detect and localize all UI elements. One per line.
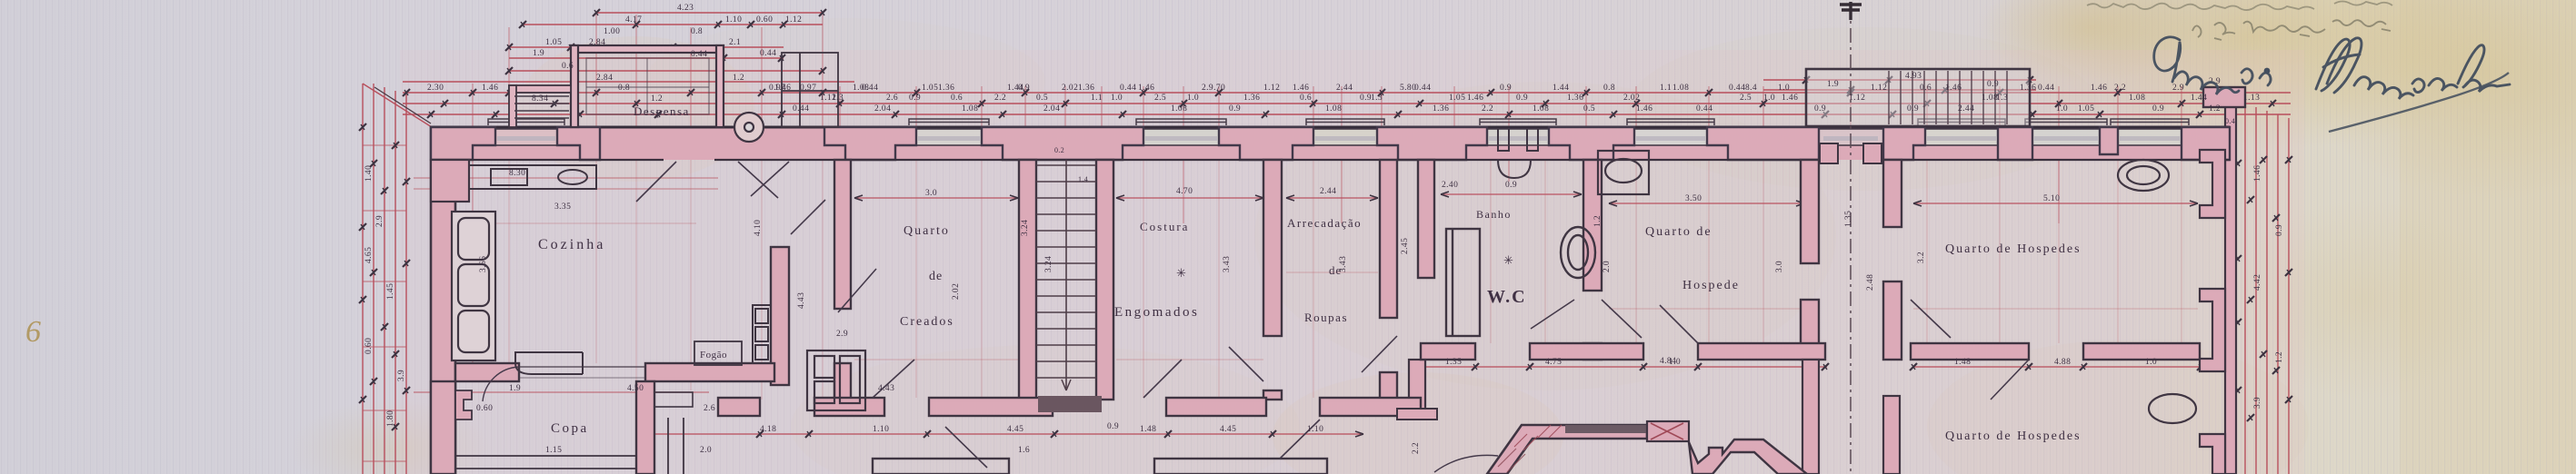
svg-text:1.0: 1.0 bbox=[1778, 84, 1790, 93]
svg-text:1.36: 1.36 bbox=[1078, 84, 1094, 93]
svg-text:4.45: 4.45 bbox=[1007, 425, 1023, 434]
svg-text:4.23: 4.23 bbox=[677, 4, 694, 13]
svg-text:Quarto de: Quarto de bbox=[1645, 225, 1712, 239]
svg-text:1.10: 1.10 bbox=[725, 15, 742, 25]
svg-text:1.08: 1.08 bbox=[962, 104, 978, 114]
svg-text:Copa: Copa bbox=[551, 421, 589, 436]
svg-text:0.5: 0.5 bbox=[1036, 94, 1048, 103]
svg-text:0.6: 0.6 bbox=[951, 94, 963, 103]
svg-text:2.5: 2.5 bbox=[1740, 94, 1752, 103]
svg-text:Despensa: Despensa bbox=[634, 104, 690, 118]
svg-text:1.36: 1.36 bbox=[1433, 104, 1449, 114]
svg-text:0.9: 0.9 bbox=[2275, 224, 2284, 236]
svg-text:1.9: 1.9 bbox=[533, 49, 544, 58]
svg-text:1.2: 1.2 bbox=[1593, 215, 1603, 227]
svg-text:1.9: 1.9 bbox=[509, 384, 521, 393]
svg-text:4.84: 4.84 bbox=[1660, 357, 1676, 366]
svg-text:1.40: 1.40 bbox=[364, 165, 374, 182]
svg-text:0.44: 0.44 bbox=[1120, 84, 1136, 93]
svg-text:3.43: 3.43 bbox=[1223, 256, 1232, 272]
svg-text:2.84: 2.84 bbox=[589, 38, 605, 47]
svg-text:1.08: 1.08 bbox=[1533, 104, 1549, 114]
svg-text:3.50: 3.50 bbox=[1685, 194, 1702, 203]
svg-text:8.4: 8.4 bbox=[1745, 84, 1757, 93]
svg-text:1.08: 1.08 bbox=[1672, 84, 1689, 93]
svg-text:2.6: 2.6 bbox=[704, 404, 715, 413]
svg-text:Costura: Costura bbox=[1140, 220, 1189, 233]
svg-text:2.2: 2.2 bbox=[994, 94, 1006, 103]
svg-text:0.9: 0.9 bbox=[1107, 422, 1119, 431]
svg-text:1.0: 1.0 bbox=[1763, 94, 1775, 103]
svg-text:1.1: 1.1 bbox=[1091, 94, 1103, 103]
svg-text:4.75: 4.75 bbox=[1545, 358, 1562, 367]
svg-text:0.44: 0.44 bbox=[691, 50, 707, 59]
svg-text:Quarto: Quarto bbox=[904, 224, 950, 238]
svg-text:1.3: 1.3 bbox=[1996, 94, 2008, 103]
svg-text:2.02: 2.02 bbox=[1623, 94, 1640, 103]
svg-text:✳: ✳ bbox=[1503, 253, 1513, 267]
svg-text:1.00: 1.00 bbox=[604, 27, 620, 36]
svg-text:0.44: 0.44 bbox=[793, 104, 809, 114]
svg-text:4.50: 4.50 bbox=[627, 384, 644, 393]
svg-text:0.97: 0.97 bbox=[800, 84, 816, 93]
svg-text:1.2: 1.2 bbox=[651, 94, 663, 104]
svg-text:3.43: 3.43 bbox=[1339, 256, 1348, 272]
svg-text:1.12: 1.12 bbox=[1871, 84, 1887, 93]
svg-text:0.5: 0.5 bbox=[1583, 104, 1595, 114]
svg-text:Engomados: Engomados bbox=[1114, 305, 1199, 320]
svg-text:0.60: 0.60 bbox=[756, 15, 773, 25]
svg-text:0.9: 0.9 bbox=[1814, 104, 1826, 114]
svg-text:Creados: Creados bbox=[900, 315, 954, 329]
svg-text:1.10: 1.10 bbox=[873, 425, 889, 434]
svg-text:1.46: 1.46 bbox=[1636, 104, 1652, 114]
svg-text:1.45: 1.45 bbox=[386, 283, 395, 300]
svg-text:de: de bbox=[929, 270, 943, 283]
svg-text:1.3: 1.3 bbox=[832, 94, 844, 103]
svg-text:1.48: 1.48 bbox=[1954, 358, 1971, 367]
svg-text:3.35: 3.35 bbox=[554, 202, 571, 212]
svg-text:Quarto de Hospedes: Quarto de Hospedes bbox=[1945, 242, 2082, 256]
svg-text:4.42: 4.42 bbox=[2253, 274, 2262, 291]
svg-text:1.2: 1.2 bbox=[2275, 351, 2284, 363]
svg-text:0.44: 0.44 bbox=[760, 49, 776, 58]
svg-text:Quarto de Hospedes: Quarto de Hospedes bbox=[1945, 430, 2082, 443]
svg-text:4.18: 4.18 bbox=[760, 425, 776, 434]
svg-text:0.9: 0.9 bbox=[2152, 104, 2164, 114]
svg-text:0.2: 0.2 bbox=[1054, 146, 1064, 154]
svg-text:1.05: 1.05 bbox=[2078, 104, 2094, 114]
svg-text:1.12: 1.12 bbox=[1263, 84, 1280, 93]
svg-text:3.2: 3.2 bbox=[1917, 252, 1926, 263]
svg-text:0.6: 0.6 bbox=[562, 62, 574, 71]
svg-text:0.60: 0.60 bbox=[476, 404, 493, 413]
svg-text:1.36: 1.36 bbox=[1243, 94, 1260, 103]
svg-text:Fogão: Fogão bbox=[700, 350, 727, 360]
svg-text:1.05: 1.05 bbox=[922, 84, 938, 93]
svg-text:0.9: 0.9 bbox=[1500, 84, 1512, 93]
svg-text:0.97: 0.97 bbox=[769, 84, 785, 93]
svg-text:0.9: 0.9 bbox=[1907, 104, 1919, 114]
svg-text:1.35: 1.35 bbox=[1445, 358, 1462, 367]
svg-text:0.9: 0.9 bbox=[909, 94, 921, 103]
svg-text:4.88: 4.88 bbox=[2054, 358, 2071, 367]
svg-text:3.0: 3.0 bbox=[925, 189, 937, 198]
svg-text:Hospede: Hospede bbox=[1682, 279, 1740, 292]
svg-text:Arrecadação: Arrecadação bbox=[1287, 216, 1362, 230]
svg-text:2.44: 2.44 bbox=[1958, 104, 1974, 114]
svg-text:1.10: 1.10 bbox=[1307, 425, 1323, 434]
svg-text:1.46: 1.46 bbox=[1467, 94, 1483, 103]
svg-text:4.43: 4.43 bbox=[878, 384, 894, 393]
svg-text:4.93: 4.93 bbox=[1905, 72, 1922, 81]
svg-text:1.15: 1.15 bbox=[545, 446, 562, 455]
svg-text:0.44: 0.44 bbox=[862, 84, 878, 93]
svg-text:1.46: 1.46 bbox=[1945, 84, 1962, 93]
svg-text:2.40: 2.40 bbox=[1442, 181, 1458, 190]
svg-text:Banho: Banho bbox=[1476, 208, 1512, 221]
svg-text:0.6: 0.6 bbox=[1920, 84, 1932, 93]
svg-text:1.6: 1.6 bbox=[1018, 446, 1030, 455]
svg-text:2.04: 2.04 bbox=[1043, 104, 1060, 114]
svg-text:2.6: 2.6 bbox=[886, 94, 898, 103]
svg-text:8.34: 8.34 bbox=[532, 94, 548, 104]
svg-text:2.48: 2.48 bbox=[1866, 274, 1875, 291]
svg-text:4.65: 4.65 bbox=[364, 247, 374, 263]
svg-text:Roupas: Roupas bbox=[1304, 311, 1348, 324]
svg-text:2.84: 2.84 bbox=[596, 74, 613, 83]
svg-text:0.8: 0.8 bbox=[691, 27, 703, 36]
svg-text:4.43: 4.43 bbox=[797, 292, 806, 309]
svg-text:0.8: 0.8 bbox=[618, 84, 630, 93]
svg-text:0.4: 0.4 bbox=[2225, 117, 2235, 125]
svg-text:1.46: 1.46 bbox=[482, 84, 498, 93]
svg-text:1.3: 1.3 bbox=[1371, 94, 1383, 103]
svg-text:4.70: 4.70 bbox=[1176, 187, 1193, 196]
svg-text:1.36: 1.36 bbox=[938, 84, 954, 93]
svg-text:3.9: 3.9 bbox=[2253, 397, 2262, 409]
svg-text:1.1: 1.1 bbox=[1660, 84, 1672, 93]
svg-text:5.10: 5.10 bbox=[2043, 194, 2060, 203]
svg-text:4.10: 4.10 bbox=[754, 220, 763, 236]
svg-text:Cozinha: Cozinha bbox=[538, 237, 605, 252]
svg-text:✳: ✳ bbox=[1176, 266, 1186, 280]
svg-text:1.08: 1.08 bbox=[1325, 104, 1342, 114]
svg-text:1.12: 1.12 bbox=[1849, 94, 1865, 103]
svg-text:2.9: 2.9 bbox=[375, 215, 384, 227]
svg-text:2.44: 2.44 bbox=[1336, 84, 1353, 93]
svg-text:1.05: 1.05 bbox=[1449, 94, 1465, 103]
svg-text:0.8: 0.8 bbox=[1603, 84, 1615, 93]
svg-text:0.44: 0.44 bbox=[1729, 84, 1745, 93]
svg-text:0.9: 0.9 bbox=[1516, 94, 1528, 103]
svg-text:1.46: 1.46 bbox=[1782, 94, 1798, 103]
svg-text:2.2: 2.2 bbox=[1412, 442, 1421, 454]
svg-text:0.44: 0.44 bbox=[2038, 84, 2054, 93]
svg-text:1.46: 1.46 bbox=[2253, 165, 2262, 182]
svg-text:2.5: 2.5 bbox=[1154, 94, 1166, 103]
svg-text:0.9: 0.9 bbox=[1229, 104, 1241, 114]
svg-text:2.02: 2.02 bbox=[952, 283, 961, 300]
svg-text:2.2: 2.2 bbox=[1482, 104, 1493, 114]
svg-text:2.45: 2.45 bbox=[1401, 238, 1410, 254]
svg-text:1.44: 1.44 bbox=[1553, 84, 1569, 93]
svg-text:1.13: 1.13 bbox=[2243, 94, 2260, 103]
svg-text:1.36: 1.36 bbox=[1567, 94, 1583, 103]
svg-text:1.08: 1.08 bbox=[1171, 104, 1187, 114]
svg-text:3.24: 3.24 bbox=[1044, 256, 1053, 272]
svg-text:1.44: 1.44 bbox=[1007, 84, 1023, 93]
svg-text:1.0: 1.0 bbox=[2145, 358, 2157, 367]
svg-text:6: 6 bbox=[25, 315, 41, 349]
svg-text:1.2: 1.2 bbox=[733, 74, 744, 83]
svg-text:4.45: 4.45 bbox=[1220, 425, 1236, 434]
svg-text:0.44: 0.44 bbox=[1696, 104, 1712, 114]
svg-text:1.48: 1.48 bbox=[1140, 425, 1156, 434]
svg-text:1.46: 1.46 bbox=[2091, 84, 2107, 93]
svg-text:0.9: 0.9 bbox=[1987, 80, 1999, 89]
svg-text:1.08: 1.08 bbox=[2129, 94, 2145, 103]
svg-text:1.05: 1.05 bbox=[545, 38, 562, 47]
svg-text:0.60: 0.60 bbox=[364, 338, 374, 354]
svg-text:1.0: 1.0 bbox=[1111, 94, 1123, 103]
svg-text:1.0: 1.0 bbox=[1187, 94, 1199, 103]
svg-text:2.9: 2.9 bbox=[2172, 84, 2184, 93]
svg-text:1.44: 1.44 bbox=[2191, 94, 2207, 103]
svg-text:4.17: 4.17 bbox=[625, 15, 642, 25]
svg-text:2.9.70: 2.9.70 bbox=[1202, 84, 1225, 93]
svg-text:2.9: 2.9 bbox=[836, 330, 848, 339]
svg-text:2.1: 2.1 bbox=[729, 38, 741, 47]
svg-text:2.0: 2.0 bbox=[700, 446, 712, 455]
svg-text:1.35: 1.35 bbox=[1844, 211, 1853, 227]
svg-text:1.9: 1.9 bbox=[1827, 80, 1839, 89]
svg-text:0.6: 0.6 bbox=[1300, 94, 1312, 103]
svg-text:W.C: W.C bbox=[1487, 287, 1527, 307]
svg-text:8.30: 8.30 bbox=[509, 169, 525, 178]
svg-text:1.46: 1.46 bbox=[1293, 84, 1309, 93]
svg-text:1.4: 1.4 bbox=[1078, 175, 1088, 183]
svg-text:3.24: 3.24 bbox=[1021, 220, 1030, 236]
svg-text:1.46: 1.46 bbox=[1138, 84, 1154, 93]
svg-text:2.44: 2.44 bbox=[1320, 187, 1336, 196]
svg-text:2.2: 2.2 bbox=[2114, 84, 2126, 93]
svg-text:1.80: 1.80 bbox=[386, 410, 395, 427]
svg-text:3.66: 3.66 bbox=[479, 256, 488, 272]
svg-text:3.0: 3.0 bbox=[1775, 261, 1784, 272]
svg-text:2.02: 2.02 bbox=[1062, 84, 1078, 93]
svg-text:1.2: 1.2 bbox=[2209, 104, 2221, 114]
svg-text:2.04: 2.04 bbox=[874, 104, 891, 114]
svg-text:2.0: 2.0 bbox=[1603, 261, 1612, 272]
svg-text:1.36: 1.36 bbox=[2020, 84, 2036, 93]
svg-text:1.0: 1.0 bbox=[2056, 104, 2068, 114]
svg-text:0.9: 0.9 bbox=[1505, 181, 1517, 190]
svg-text:3.9: 3.9 bbox=[397, 370, 406, 381]
svg-text:1.12: 1.12 bbox=[785, 15, 802, 25]
svg-text:2.30: 2.30 bbox=[427, 84, 444, 93]
svg-text:0.44: 0.44 bbox=[1414, 84, 1431, 93]
